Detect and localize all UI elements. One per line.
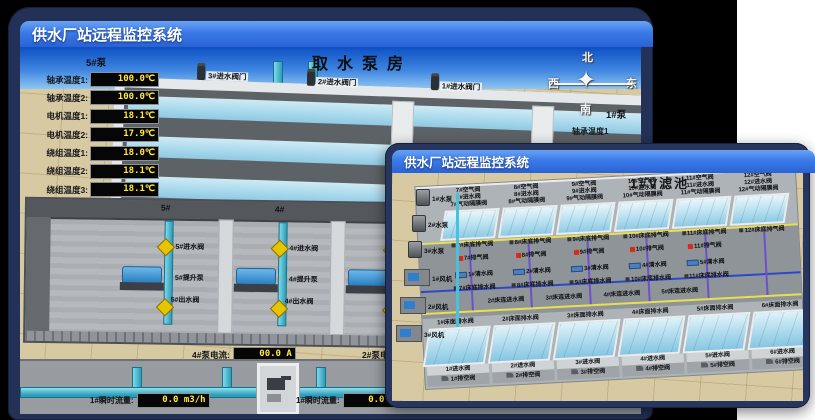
filter-cell[interactable]: 2#床面排水阀 2#进水阀 2#排空阀 [489, 314, 554, 383]
air-release-valve-label[interactable]: 7#排气阀 [444, 254, 502, 264]
valve-icon [431, 76, 439, 90]
sensor-label: 电机温度2: [30, 129, 88, 141]
sensor-value-display: 100.0℃ [90, 90, 159, 105]
booster-pump-cabinet[interactable] [257, 363, 299, 414]
pump-icon[interactable] [348, 269, 388, 287]
blower-fan-icon [396, 325, 422, 342]
filter-pool-water [672, 196, 732, 229]
clean-water-valve-label[interactable]: 5#清水阀 [677, 258, 735, 269]
blower-fan-label: 2#风机 [428, 301, 448, 311]
filter-pool-water [614, 199, 674, 232]
compass-north: 北 [582, 49, 593, 65]
sensor-readout-row: 轴承温度2: 100.0℃ [30, 90, 170, 105]
filter-cell[interactable]: 9#空气阀 9#进水阀 9#气动隔膜阀 [556, 180, 614, 233]
window-filter-pools: 供水厂站远程监控系统 1#V滤池 7#空气阀 7#进水阀 7#气动隔膜阀 [385, 143, 810, 408]
air-release-valve-label[interactable]: 10#排气阀 [618, 245, 676, 255]
sensor-value-display: 100.0℃ [90, 72, 159, 87]
vent-valve-label: 6#排空阀 [752, 356, 803, 370]
water-pump-item[interactable]: 1#水泵 [416, 189, 452, 206]
inlet-valve-label: 1#进水阀门 [440, 81, 483, 91]
sensor-value-display: 17.9℃ [90, 127, 159, 142]
valve-icon [307, 72, 315, 86]
vent-valve-label: 5#排空阀 [687, 359, 749, 373]
sensor-value-display: 18.1℃ [90, 164, 159, 179]
sensor-label: 轴承温度1: [30, 74, 88, 86]
sensor-value-display: 18.0℃ [90, 146, 159, 161]
clean-water-valve-label[interactable]: 4#清水阀 [619, 261, 677, 272]
water-pump-item[interactable]: 3#水泵 [408, 241, 444, 258]
compass-star-icon: ✦ [576, 67, 596, 95]
clean-water-valve-label[interactable]: 2#清水阀 [503, 267, 561, 278]
filter-pool-water [556, 202, 616, 235]
filter-platform: 7#空气阀 7#进水阀 7#气动隔膜阀 8#空气阀 8#进水阀 8#气动隔膜阀 [415, 173, 803, 389]
filter-pool-water [747, 309, 803, 351]
bay-pump-label: 4#提升泵 [289, 274, 318, 284]
pump-icon[interactable] [122, 266, 162, 284]
filter-cell[interactable]: 3#床面排水阀 3#进水阀 3#排空阀 [554, 311, 619, 380]
pump-bay: 5# 5#进水阀 5#提升泵 5#出水阀 [119, 220, 233, 334]
vent-valve-label: 3#排空阀 [557, 366, 619, 380]
blower-fan-item[interactable]: 1#风机 [404, 269, 452, 286]
clean-water-valve-label[interactable]: 3#清水阀 [561, 264, 619, 275]
inlet-valve-label: 2#进水阀门 [316, 77, 359, 87]
bay-outlet-valve-label: 4#出水阀 [285, 296, 314, 306]
inlet-valve[interactable]: 1#进水阀门 [431, 76, 483, 92]
vent-valve-label: 1#排空阀 [427, 373, 489, 387]
filter-cell[interactable]: 4#床面排水阀 4#进水阀 4#排空阀 [619, 308, 684, 377]
sensor-label: 绕组温度2: [30, 165, 88, 177]
equipment-pipe [456, 193, 459, 327]
filter-cell[interactable]: 5#床面排水阀 5#进水阀 5#排空阀 [684, 304, 749, 373]
titlebar-filter[interactable]: 供水厂站远程监控系统 [392, 150, 815, 173]
bed-drain-valve-label[interactable]: 7#床底排水阀 [446, 284, 504, 294]
titlebar-intake[interactable]: 供水厂站远程监控系统 [20, 21, 653, 47]
sensor-label: 绕组温度3: [30, 184, 88, 196]
filter-cell[interactable]: 6#床面排水阀 6#进水阀 6#排空阀 [749, 301, 803, 370]
filter-pool-water [730, 193, 790, 226]
bay-number: 5# [161, 203, 171, 213]
valve-icon [197, 66, 205, 80]
blower-fan-icon [400, 297, 426, 314]
air-release-valve-label[interactable]: 11#排气阀 [676, 242, 734, 252]
water-pump-icon [408, 241, 422, 258]
blower-fan-item[interactable]: 3#风机 [396, 325, 444, 342]
bed-drain-valve-label[interactable]: 8#床底排水阀 [504, 281, 562, 291]
flow-label: 1#瞬时流量: [296, 395, 340, 406]
blower-fan-icon [404, 269, 430, 286]
scene-title: 取水泵房 [312, 50, 412, 74]
water-pump-label: 2#水泵 [428, 219, 448, 229]
pump5-panel-header: 5#泵 [86, 55, 170, 69]
bed-inlet-valve-label[interactable]: 3#床连进水阀 [534, 293, 592, 303]
bay-outlet-valve-label: 5#出水阀 [171, 295, 200, 305]
filter-pool-water [618, 315, 686, 357]
pump-base [346, 285, 390, 294]
pump-base [120, 282, 164, 291]
water-pump-icon [412, 215, 426, 232]
sensor-label: 轴承温度2: [30, 92, 88, 104]
blower-fan-label: 1#风机 [432, 273, 452, 283]
water-pump-icon [416, 189, 430, 206]
sensor-label: 绕组温度1: [30, 147, 88, 159]
pump-base [234, 284, 278, 293]
sensor-label: 电机温度1: [30, 110, 88, 122]
filter-pool-water [682, 312, 750, 354]
filter-scene-title: 1#V滤池 [630, 173, 689, 192]
window-title: 供水厂站远程监控系统 [32, 24, 182, 45]
window-title: 供水厂站远程监控系统 [404, 152, 529, 171]
sensor-readout-row: 绕组温度3: 18.1℃ [30, 182, 170, 197]
filter-cell[interactable]: 12#空气阀 12#进水阀 12#气动隔膜阀 [730, 173, 788, 224]
inlet-valve-label: 3#进水阀门 [206, 71, 249, 81]
bed-drain-valve-label[interactable]: 10#床底排水阀 [619, 275, 677, 285]
filter-pool-water [488, 322, 556, 364]
flow-readout: 1#瞬时流量: 0.0 m3/h [90, 393, 210, 408]
pump1-panel-header: 1#泵 [606, 107, 641, 121]
air-release-valve-label[interactable]: 9#排气阀 [560, 248, 618, 258]
blower-fan-item[interactable]: 2#风机 [400, 297, 448, 314]
inlet-valve[interactable]: 3#进水阀门 [197, 66, 249, 82]
sensor-readout-row: 绕组温度1: 18.0℃ [30, 146, 170, 161]
bed-drain-valve-label[interactable]: 9#床底排水阀 [562, 278, 620, 288]
vent-valve-label: 2#排空阀 [492, 369, 554, 383]
blower-fan-label: 3#风机 [424, 329, 444, 339]
bed-inlet-valve-label[interactable]: 4#床连进水阀 [592, 290, 650, 300]
bed-inlet-valve-label[interactable]: 2#床连进水阀 [476, 296, 534, 306]
air-release-valve-label[interactable]: 8#排气阀 [502, 251, 560, 261]
clean-water-valve-label[interactable]: 1#清水阀 [445, 270, 503, 281]
scene-filter: 1#V滤池 7#空气阀 7#进水阀 7#气动隔膜阀 8#空气阀 [392, 173, 803, 401]
bay-number: 4# [275, 204, 285, 214]
vent-valve-label: 4#排空阀 [622, 362, 684, 376]
flow-display: 0.0 m3/h [137, 393, 210, 408]
filter-pool-water [440, 208, 500, 241]
pump-hall-wall [25, 217, 51, 331]
sensor-readout-row: 轴承温度1: 100.0℃ [30, 72, 170, 87]
water-pump-label: 1#水泵 [432, 193, 452, 203]
bed-inlet-valve-label[interactable]: 5#床连进水阀 [650, 287, 708, 297]
bay-pump-label: 5#提升泵 [175, 273, 204, 283]
sensor-readout-row: 电机温度1: 18.1℃ [30, 109, 170, 124]
filter-pool-water [498, 205, 558, 238]
pump1-sensor-label: 轴承温度1 [572, 126, 641, 137]
filter-pool-water [553, 319, 621, 361]
water-pump-label: 3#水泵 [424, 245, 444, 255]
flow-label: 1#瞬时流量: [90, 395, 134, 406]
pump-bay: 4# 4#进水阀 4#提升泵 4#出水阀 [233, 222, 347, 336]
pump-icon[interactable] [236, 268, 276, 286]
bay-inlet-valve-label: 4#进水阀 [289, 243, 318, 253]
sensor-readout-row: 绕组温度2: 18.1℃ [30, 164, 170, 179]
inlet-valve[interactable]: 2#进水阀门 [307, 72, 359, 88]
sensor-value-display: 18.1℃ [90, 182, 159, 197]
sensor-value-display: 18.1℃ [90, 109, 159, 124]
page: 供水厂站远程监控系统 取水泵房 3#进水阀门 [0, 0, 815, 420]
bay-inlet-valve-label: 5#进水阀 [175, 242, 204, 252]
water-pump-item[interactable]: 2#水泵 [412, 215, 448, 232]
riser-pipe-purple [763, 231, 768, 295]
filter-cell[interactable]: 8#空气阀 8#进水阀 8#气动隔膜阀 [498, 183, 556, 236]
sensor-readout-row: 电机温度2: 17.9℃ [30, 127, 170, 142]
